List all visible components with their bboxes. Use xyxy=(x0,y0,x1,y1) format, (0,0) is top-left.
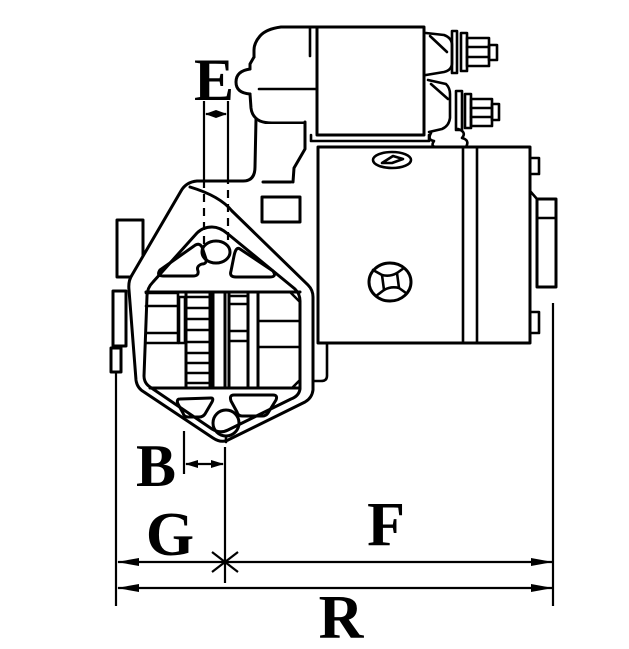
terminal-foot-right xyxy=(458,129,467,147)
terminal-nut-lower xyxy=(471,99,492,126)
dimension-label-g: G xyxy=(146,501,194,569)
terminal-stud-upper xyxy=(426,31,497,75)
side-cross-screw-icon xyxy=(369,263,411,301)
solenoid-body xyxy=(317,27,424,135)
terminal-nut-upper xyxy=(467,38,489,66)
drawing-canvas: E B G F R xyxy=(0,0,629,649)
dimension-label-f: F xyxy=(367,491,405,559)
terminal-foot-left xyxy=(430,133,437,147)
terminal-stud-lower xyxy=(428,80,499,132)
yoke-window xyxy=(262,197,300,222)
top-screw-icon xyxy=(373,152,411,168)
starter-motor-technical-drawing: E B G F R xyxy=(0,0,629,649)
motor-body-outline xyxy=(318,147,530,343)
left-tab-lower xyxy=(111,348,121,372)
motor-body xyxy=(313,147,556,381)
dimension-label-b: B xyxy=(136,433,176,499)
dimension-label-r: R xyxy=(319,584,365,649)
cap-front-bump xyxy=(236,69,250,94)
rear-block xyxy=(537,199,556,287)
dimension-r: R xyxy=(117,584,553,649)
left-tab-middle xyxy=(113,291,126,346)
body-lower-bracket xyxy=(313,344,327,381)
dimension-label-e: E xyxy=(194,47,234,113)
terminal-studs xyxy=(426,31,499,147)
solenoid-front-cap xyxy=(236,27,317,123)
drive-housing-flange xyxy=(129,119,313,443)
